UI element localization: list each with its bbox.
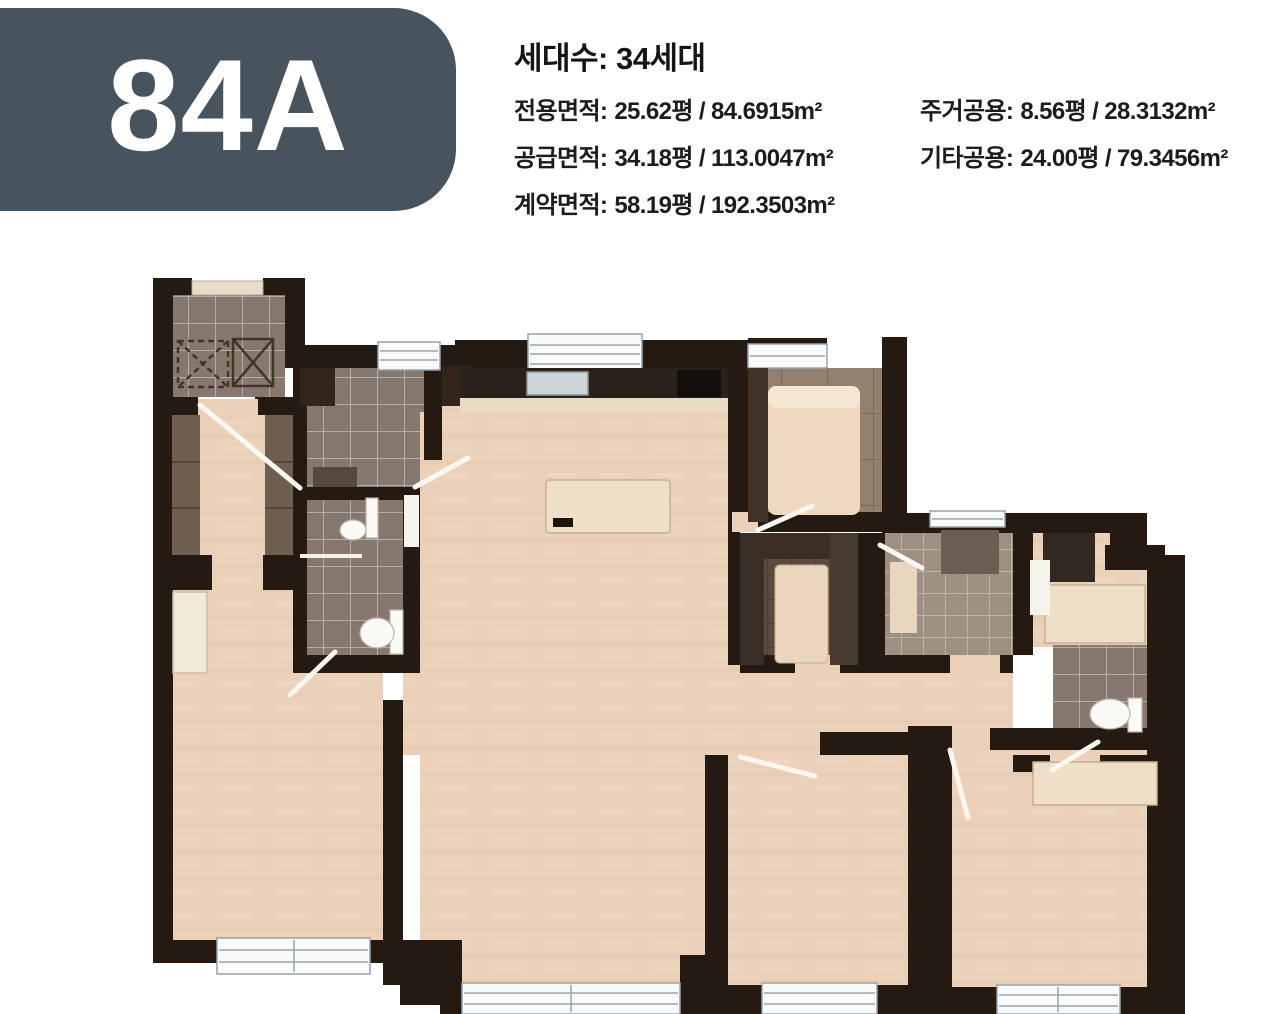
dining-table	[546, 480, 670, 533]
elevator-opening	[192, 281, 263, 295]
unit-flyer-page: 84A 세대수: 34세대 전용면적:25.62평 / 84.6915m² 공급…	[0, 0, 1265, 1014]
kitchen	[460, 368, 728, 413]
entry-door	[378, 342, 440, 370]
bedroom1-window	[217, 938, 370, 974]
bedroom-1-closet	[173, 592, 207, 673]
master-bedroom	[748, 368, 860, 522]
utility-window	[930, 511, 1005, 527]
floor-plan-image	[0, 0, 1265, 1014]
bedroom3-window	[762, 983, 877, 1014]
living-bottom-window	[462, 983, 680, 1014]
utility-room	[941, 530, 999, 574]
bedroom4-window	[997, 985, 1120, 1014]
master-window	[748, 344, 827, 368]
